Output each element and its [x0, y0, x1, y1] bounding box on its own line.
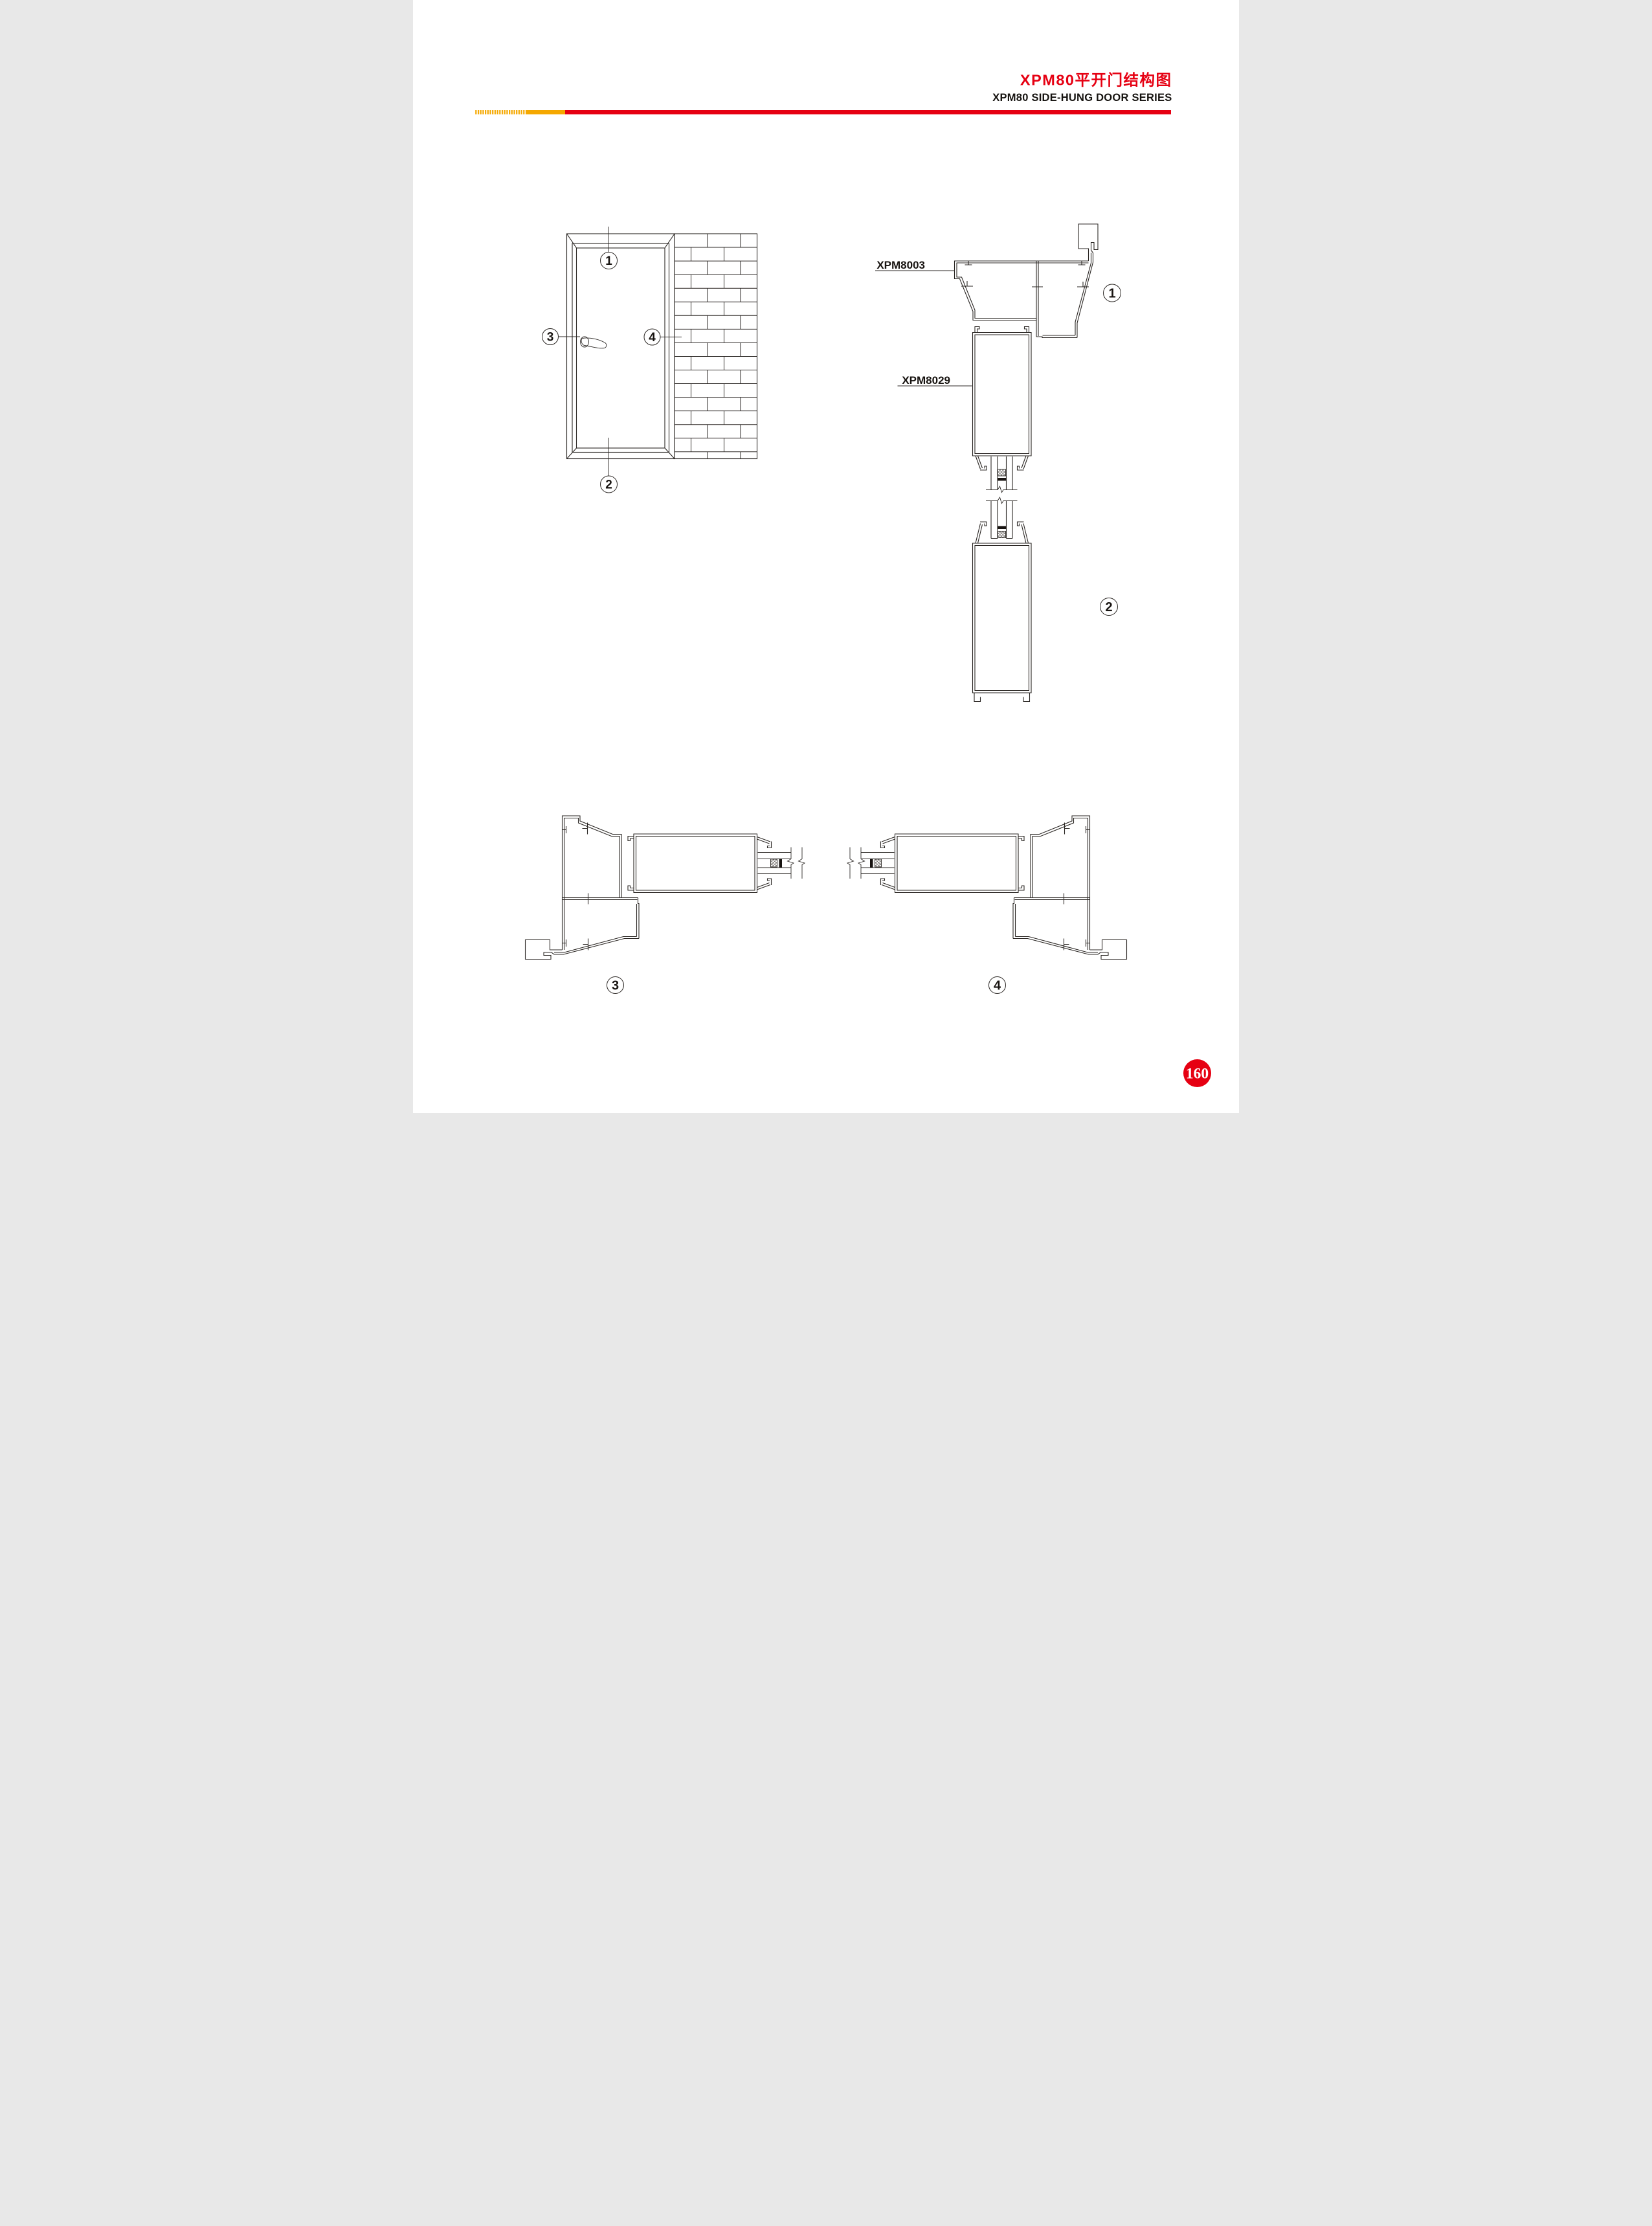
brick-wall-pattern [675, 234, 757, 459]
section-callout-3-label: 3 [612, 979, 619, 993]
drawing-canvas: XPM80平开门结构图 XPM80 SIDE-HUNG DOOR SERIES … [413, 0, 1239, 1113]
callout-1-label: 1 [605, 254, 612, 268]
horizontal-section-right [847, 816, 1127, 960]
callout-2-label: 2 [605, 478, 612, 492]
section-callout-1-label: 1 [1108, 287, 1115, 301]
page-subtitle: XPM80 SIDE-HUNG DOOR SERIES [992, 92, 1172, 104]
callout-4-label: 4 [649, 331, 656, 344]
jamb-frame-profile-right [1013, 816, 1127, 960]
elevation-callouts: 1 2 3 4 [542, 227, 682, 493]
leaf-bottom-rail [973, 501, 1032, 702]
page-number-badge: 160 [1183, 1059, 1211, 1087]
door-frame-outer [567, 234, 675, 459]
section-callout-4-label: 4 [994, 979, 1001, 993]
head-frame-profile [955, 224, 1099, 338]
label-leaf-profile: XPM8029 [902, 374, 950, 387]
header-accent-bar [474, 110, 1171, 115]
jamb-frame-profile-left [526, 816, 640, 960]
leaf-top-rail [973, 327, 1032, 490]
callout-3-label: 3 [547, 331, 554, 344]
horizontal-section-left [526, 816, 805, 960]
page-title: XPM80平开门结构图 [1020, 71, 1172, 89]
header-bar-yellow [526, 110, 565, 115]
header-bar-red [565, 110, 1171, 115]
page-number: 160 [1186, 1066, 1209, 1083]
frame-miter-joints [567, 234, 675, 459]
door-elevation: 1 2 3 4 [542, 227, 757, 493]
label-frame-profile: XPM8003 [876, 259, 925, 271]
brick-wall [675, 234, 757, 459]
door-leaf [572, 243, 669, 453]
leaf-stile-left [628, 834, 791, 893]
section-callout-2-label: 2 [1105, 600, 1112, 614]
leaf-stile-right [861, 834, 1024, 893]
vertical-section: XPM8003 XPM8029 1 2 [875, 224, 1121, 702]
door-handle [581, 337, 607, 348]
catalog-page: XPM80平开门结构图 XPM80 SIDE-HUNG DOOR SERIES … [413, 0, 1239, 1113]
door-panel [577, 248, 665, 448]
header-bar-stripes [474, 110, 526, 115]
